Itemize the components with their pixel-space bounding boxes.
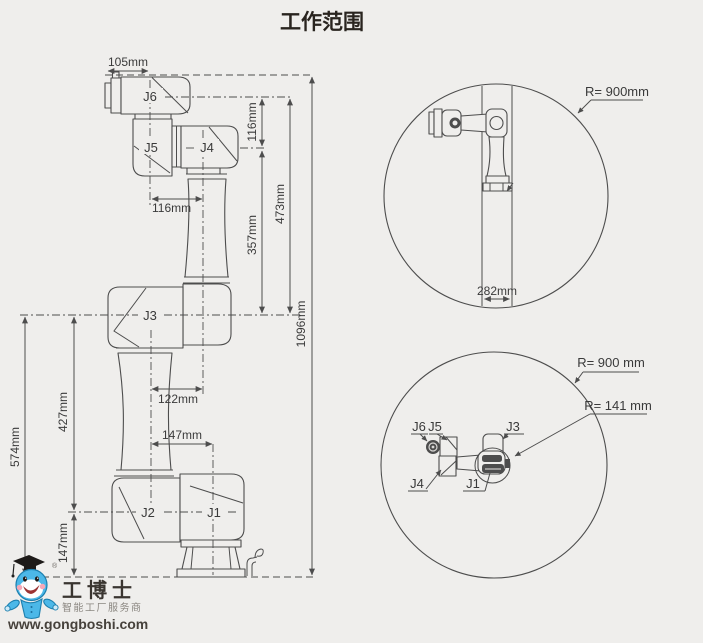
dim-574mm: 574mm [8,427,22,467]
top-inner-radius-callout: R= 141 mm [515,398,652,456]
robot-base [177,540,263,577]
joint-label-j3: J3 [143,308,157,323]
top-outer-radius-callout: R= 900 mm [575,355,645,383]
top-label-j3: J3 [506,419,520,434]
top-inner-radius-label: R= 141 mm [584,398,652,413]
brand-tagline: 智能工厂服务商 [62,601,143,614]
lower-arm [118,353,172,470]
dim-427mm: 427mm [56,392,70,432]
dim-147mm-horizontal: 147mm [162,428,202,442]
joint-label-j1: J1 [207,505,221,520]
brand-name: 工博士 [62,578,137,602]
page-title: 工作范围 [280,10,364,34]
brand-website: www.gongboshi.com [7,616,148,632]
dim-282mm: 282mm [477,284,517,298]
front-envelope: 282mm R= 900mm [384,84,649,308]
work-range-diagram: 工作范围 [0,0,703,643]
dim-105mm: 105mm [108,55,148,69]
robot-side-view [105,72,263,577]
cable-connector-icon [247,549,263,576]
upper-arm [185,179,228,277]
joint-label-j6: J6 [143,89,157,104]
joint-label-j5: J5 [144,140,158,155]
tool-flange [105,72,121,113]
dim-473mm: 473mm [273,184,287,224]
dim-122mm: 122mm [158,392,198,406]
j3-motor [183,284,231,345]
front-radius-label: R= 900mm [585,84,649,99]
top-label-j1: J1 [466,476,480,491]
registered-mark: ® [52,562,58,570]
joint-label-j4: J4 [200,140,214,155]
dim-1096mm: 1096mm [294,301,308,348]
mini-robot-top [426,434,510,476]
mascot-icon [5,555,58,619]
top-label-j6: J6 [412,419,426,434]
top-envelope: J6 J5 J3 J4 J1 R= 900 mm R= 141 mm [381,352,652,578]
dim-116mm-horizontal: 116mm [152,201,191,215]
top-label-j5: J5 [428,419,442,434]
dim-357mm: 357mm [245,215,259,255]
joint-label-j2: J2 [141,505,155,520]
gongboshi-logo: ® 工博士 智能工厂服务商 www.gongboshi.com [5,555,148,632]
top-label-j4: J4 [410,476,424,491]
front-radius-callout: R= 900mm [578,84,649,113]
mini-robot-front [429,109,513,191]
dim-147mm-vertical: 147mm [56,523,70,563]
top-outer-radius-label: R= 900 mm [577,355,645,370]
dim-116mm-vertical: 116mm [245,102,259,141]
